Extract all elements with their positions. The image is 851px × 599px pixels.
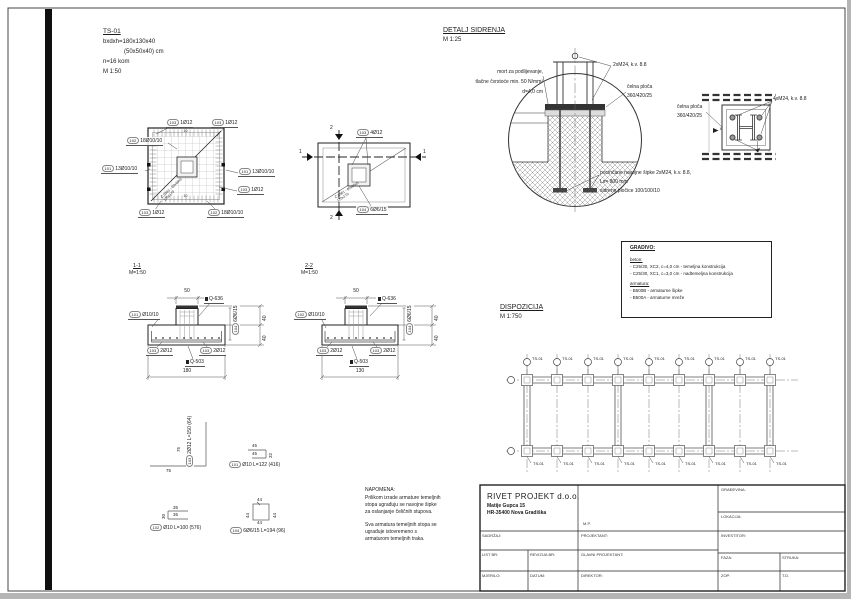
dim-text: 130 <box>349 369 371 375</box>
rebar-label: 10113Ø10/10 <box>101 165 138 174</box>
footing-tag: TS-01 <box>775 357 786 362</box>
concrete-heading: beton: <box>630 257 643 262</box>
bar-shape-label: 101Ø10 L=122 (416) <box>228 461 281 469</box>
pos-bubble: 101 <box>239 168 251 175</box>
rebar-label: 1031Ø12 <box>211 119 238 128</box>
bar-shape-label: 102Ø10 L=100 (576) <box>149 524 202 532</box>
footing-tag: TS-01 <box>563 462 574 467</box>
section-title: 2-2 <box>305 263 313 269</box>
pos-bubble: 103 <box>357 129 369 136</box>
rebar-label: 1031Ø12 <box>166 119 193 128</box>
footing-tag: TS-01 <box>714 357 725 362</box>
binding-bar <box>45 9 52 590</box>
pos-bubble: 103 <box>186 455 193 467</box>
dim-50 <box>167 296 207 304</box>
rebar-spec: 1Ø12 <box>251 187 263 193</box>
pos-bubble: 104 <box>406 323 413 335</box>
drawing-scale: M 1:50 <box>103 69 121 76</box>
dim-text: 45 <box>252 443 257 448</box>
pos-bubble: 103 <box>370 347 382 354</box>
pos-bubble: 102 <box>208 209 220 216</box>
rebar-label: 1032Ø12 <box>316 347 343 356</box>
dim-text: 44 <box>257 520 262 525</box>
rebar-label: 1031Ø12 <box>237 186 264 195</box>
bar-shape-label: 1046Ø6/15 L=194 (96) <box>229 527 286 535</box>
drawing-title: TS-01 <box>103 28 121 35</box>
footing-count: n=16 kom <box>103 59 130 66</box>
bolt-spec: 4xM24, k.v. 8.8 <box>773 97 807 103</box>
materials-box <box>621 241 772 318</box>
dim-text: 44 <box>245 513 250 518</box>
pos-bubble: 104 <box>232 323 239 335</box>
drawing-sheet: TS-01 bxdxh=180x130x40 (50x50x40) cm n=1… <box>0 0 847 593</box>
spacing-tick: 10 <box>184 129 188 133</box>
dim-text: 40 <box>263 335 269 341</box>
field-zop: ZOP: <box>721 573 730 578</box>
rebar-spec: 1Ø12 <box>225 120 237 126</box>
mesh-mark-icon <box>378 297 381 302</box>
field-glavni-projektant: GLAVNI PROJEKTANT: <box>581 552 623 557</box>
footing-tag: TS-01 <box>623 357 634 362</box>
rebar-label: 10218Ø10/10 <box>126 137 163 146</box>
pos-bubble: 103 <box>238 186 250 193</box>
mesh-mark-icon <box>350 360 353 365</box>
field-list-br: LIST BR: <box>482 552 498 557</box>
section-mark-1: 1 <box>423 150 426 156</box>
company-address: Matije Gupca 15 <box>487 504 525 510</box>
layout-scale: M 1:750 <box>500 314 522 321</box>
section-title: 1-1 <box>133 263 141 269</box>
dim-text: 40 <box>435 335 441 341</box>
field-mjerilo: MJERILO: <box>482 573 500 578</box>
dim-text: 32 <box>268 453 273 458</box>
section-mark-2: 2 <box>330 216 333 222</box>
pos-bubble: 102 <box>127 137 139 144</box>
rebar-spec: 6Ø6/15 <box>370 207 386 213</box>
concrete-item: - C25/30, XC2, c=4,0 cm - temeljna konst… <box>630 264 725 269</box>
rebar-label: 101Ø10/10 <box>128 311 160 320</box>
rebar-label: 1034Ø12 <box>356 129 383 138</box>
mesh-label: Q-636 <box>377 296 397 304</box>
note-line: Sva armatura temeljnih stopa se <box>365 523 437 529</box>
mortar-note-line: mort za podlijevanje, <box>455 70 543 76</box>
rebar-heading: armatura: <box>630 281 649 286</box>
plate-spec: čelna ploča <box>627 85 652 91</box>
footing-tag: TS-01 <box>776 462 787 467</box>
plate-spec: 360/420/25 <box>627 94 652 100</box>
pos-bubble: 102 <box>295 311 307 318</box>
dim-text: 75 <box>166 468 171 473</box>
dim-text: 40 <box>435 315 441 321</box>
field-investitor: INVESTITOR: <box>721 533 746 538</box>
mesh-mark-icon <box>186 360 189 365</box>
mesh-mark-icon <box>205 297 208 302</box>
field-gradjevina: GRAĐEVINA: <box>721 487 746 492</box>
dim-text: 180 <box>176 369 198 375</box>
dim-text: 50 <box>347 289 365 295</box>
rebar-label: 1031Ø12 <box>138 209 165 218</box>
rebar-label: 1046Ø6/15 <box>356 206 388 215</box>
pos-bubble: 103 <box>147 347 159 354</box>
rebar-label: 102Ø10/10 <box>294 311 326 320</box>
dim-text: 40 <box>263 315 269 321</box>
dim-text: 30 <box>161 514 166 519</box>
rebar-label: 1032Ø12 <box>369 347 396 356</box>
footing-tag: TS-01 <box>562 357 573 362</box>
mesh-label: Q-503 <box>349 359 369 367</box>
section-2-2-drawing <box>320 296 436 380</box>
bolt-spec: 2xM24, k.v. 8.8 <box>613 63 647 69</box>
rebar-spec: 1Ø12 <box>180 120 192 126</box>
field-faza: FAZA: <box>721 555 732 560</box>
rebar-label: 1032Ø12 <box>146 347 173 356</box>
note-line: ugrađuje istovremeno s <box>365 530 417 536</box>
anchor-note-line: Ls= 800 mm <box>600 180 628 186</box>
footing-tag: TS-01 <box>715 462 726 467</box>
stirrup-label: 1046Ø6/15 <box>232 304 240 336</box>
note-title: NAPOMENA: <box>365 488 395 494</box>
rebar-spec: 13Ø10/10 <box>252 169 274 175</box>
rebar-spec: 18Ø10/10 <box>140 138 162 144</box>
footings <box>522 375 776 457</box>
pos-bubble: 103 <box>317 347 329 354</box>
dim-text: 45 <box>252 451 257 456</box>
plate-spec: 360/420/25 <box>677 114 702 120</box>
dim-50 <box>336 296 376 304</box>
note-line: armaturom temeljnih traka. <box>365 537 424 543</box>
rebar-item: - B500A - armaturne mreže <box>630 295 684 300</box>
axis-bubbles <box>508 359 774 455</box>
mesh-label: Q-636 <box>204 296 224 304</box>
note-line: za oslanjanje čeličnih stupova. <box>365 510 433 516</box>
detail-title: DETALJ SIDRENJA <box>443 27 505 35</box>
rebar-label: 10218Ø10/10 <box>207 209 244 218</box>
pos-bubble: 101 <box>102 165 114 172</box>
grade-beams <box>524 377 773 454</box>
end-plate-detail-drawing <box>702 95 776 159</box>
pos-bubble: 103 <box>200 347 212 354</box>
pos-bubble: 102 <box>150 524 162 531</box>
dim-text: 44 <box>272 513 277 518</box>
concrete-item: - C25/30, XC1, c=3,0 cm - nadtemeljna ko… <box>630 271 733 276</box>
rebar-item: - B500B - armaturne šipke <box>630 288 683 293</box>
weld-size: 6 <box>720 127 722 132</box>
field-sadrzaj: SADRŽAJ: <box>482 533 501 538</box>
company-address: HR-35400 Nova Gradiška <box>487 511 546 517</box>
stirrup-label: 1046Ø6/15 <box>406 304 414 336</box>
rebar-spec: 4Ø12 <box>370 130 382 136</box>
footing-tag: TS-01 <box>624 462 635 467</box>
mortar-note-line: d=4,0 cm <box>455 90 543 96</box>
dispozicija-drawing <box>506 354 798 472</box>
section-scale: M=1:50 <box>301 271 318 277</box>
section-scale: M=1:50 <box>129 271 146 277</box>
field-revizija-br: REVIZIJA BR: <box>530 552 555 557</box>
rebar-spec: 1Ø12 <box>152 210 164 216</box>
field-struka: STRUKA: <box>782 555 799 560</box>
footing-tag: TS-01 <box>655 462 666 467</box>
field-lokacija: LOKACIJA: <box>721 514 741 519</box>
rebar-label: 1032Ø12 <box>199 347 226 356</box>
layout-title: DISPOZICIJA <box>500 304 543 312</box>
spacing-tick: 10 <box>184 194 188 198</box>
dim-text: 44 <box>257 497 262 502</box>
footing-tag: TS-01 <box>746 462 757 467</box>
stamp-placeholder: M.P. <box>583 521 591 526</box>
footing-tag: TS-01 <box>685 462 696 467</box>
bar-shape-label: 1032Ø12 L=150 (64) <box>186 415 194 468</box>
note-line: stopa ugrađuju se navojne šipke <box>365 503 437 509</box>
footing-tag: TS-01 <box>533 462 544 467</box>
plate-spec: čelna ploča <box>677 105 702 111</box>
field-direktor: DIREKTOR: <box>581 573 603 578</box>
field-td: T.D. <box>782 573 789 578</box>
footing-dimensions-2: (50x50x40) cm <box>124 49 164 56</box>
footing-tag: TS-01 <box>532 357 543 362</box>
footing-tag: TS-01 <box>593 357 604 362</box>
footing-tag: TS-01 <box>745 357 756 362</box>
note-line: Prilikom izrade armature temeljnih <box>365 496 441 502</box>
section-mark-2: 2 <box>330 126 333 132</box>
mesh-label: Q-503 <box>185 359 205 367</box>
anchor-note-line: pocinčane navojne šipke 2xM24, k.v. 8.8, <box>600 171 691 177</box>
company-name: RIVET PROJEKT d.o.o. <box>487 492 580 501</box>
pos-bubble: 103 <box>139 209 151 216</box>
rebar-label: 10113Ø10/10 <box>238 168 275 177</box>
footing-tag: TS-01 <box>684 357 695 362</box>
rebar-spec: 18Ø10/10 <box>221 210 243 216</box>
field-projektant: PROJEKTANT: <box>581 533 608 538</box>
pos-bubble: 104 <box>357 206 369 213</box>
rebar-spec: 13Ø10/10 <box>115 166 137 172</box>
pos-bubble: 103 <box>167 119 179 126</box>
footing-tag: TS-01 <box>654 357 665 362</box>
mortar-note-line: tlačne čvrstoće min. 50 N/mm² <box>455 80 543 86</box>
section-1-1-drawing <box>146 296 264 380</box>
field-datum: DATUM: <box>530 573 545 578</box>
detail-scale: M 1:25 <box>443 37 461 44</box>
pos-bubble: 101 <box>129 311 141 318</box>
footing-tag: TS-01 <box>594 462 605 467</box>
materials-title: GRADIVO: <box>630 246 655 252</box>
dim-text: 75 <box>176 447 181 452</box>
pos-bubble: 101 <box>229 461 241 468</box>
dim-text: 50 <box>178 289 196 295</box>
footing-dimensions: bxdxh=180x130x40 <box>103 39 155 46</box>
anchor-note-line: sidrene pločice 100/100/10 <box>600 189 660 195</box>
pos-bubble: 103 <box>212 119 224 126</box>
section-mark-1: 1 <box>299 150 302 156</box>
dim-text: 35 <box>173 505 178 510</box>
dim-text: 35 <box>173 512 178 517</box>
pos-bubble: 104 <box>230 527 242 534</box>
